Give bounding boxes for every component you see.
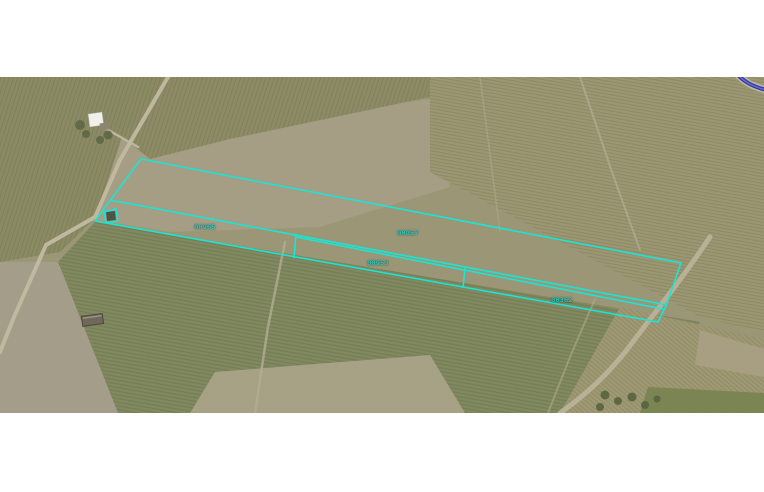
- parcel-label-00953[interactable]: 00953: [367, 259, 389, 267]
- aerial-map[interactable]: 00965 00957 00953 00362: [0, 77, 764, 413]
- map-viewport: 00965 00957 00953 00362: [0, 0, 764, 492]
- parcel-label-00957[interactable]: 00957: [397, 229, 419, 237]
- field-texture-layer: [0, 77, 764, 413]
- aerial-imagery: [0, 77, 764, 413]
- letterbox-bottom: [0, 413, 764, 492]
- parcel-label-00965[interactable]: 00965: [194, 223, 216, 231]
- letterbox-top: [0, 0, 764, 77]
- parcel-label-00362[interactable]: 00362: [551, 296, 573, 304]
